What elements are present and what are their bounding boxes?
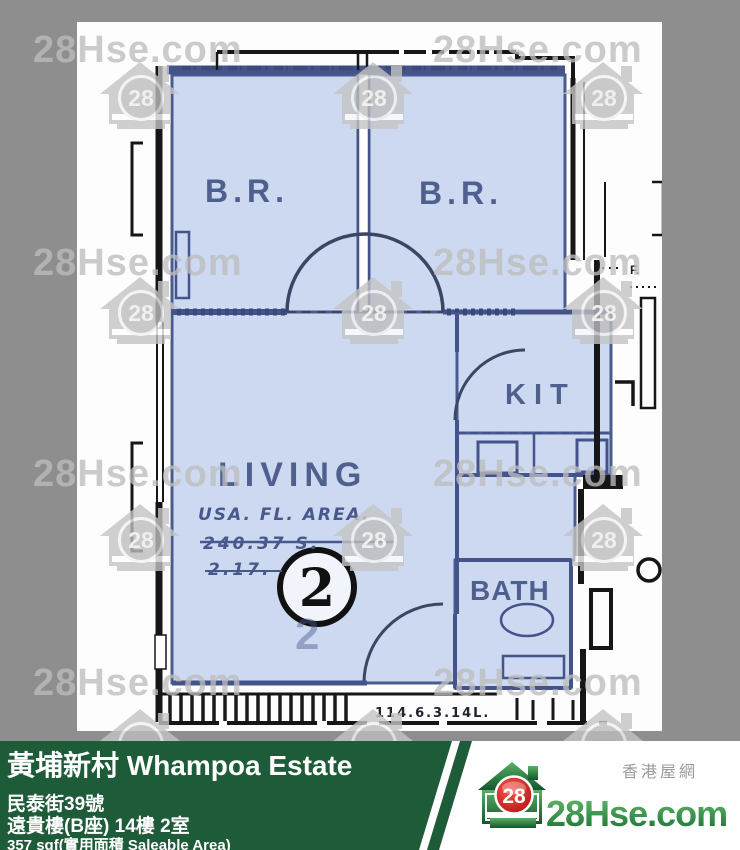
room-label-living: LIVING [218,456,367,494]
corridor-area [457,475,575,560]
neighbor-fixture-circle [638,559,660,581]
bottom-dimension-scribble: 114.6.3.14L. [375,706,490,721]
left-bracket-1 [132,143,143,235]
room-label-kitchen: KIT [505,379,576,411]
wall-right-lower [581,489,583,722]
area-annotation-2: 240.37 S. [203,534,320,554]
area-annotation-1: USA. FL. AREA. [198,505,371,525]
balcony-hatch-right [517,698,573,720]
wall-block [583,475,623,489]
unit-number: 2 [299,558,335,619]
green-caption-panel: 黃埔新村 Whampoa Estate 民泰街39號 遠貴樓(B座) 14樓 2… [0,741,470,850]
wall-right-inner [584,82,605,260]
brand-28-icon: 28 [502,785,526,808]
duct-box [591,590,611,648]
kitchen-area [457,312,611,433]
brand-house-icon: 28 [478,762,546,828]
left-bracket-2 [132,443,143,551]
estate-name: 黃埔新村 Whampoa Estate [7,744,352,784]
right-bracket [652,182,662,235]
bedroom-divider [358,75,369,312]
room-label-bathroom: BATH [470,575,550,606]
caption-bar: 黃埔新村 Whampoa Estate 民泰街39號 遠貴樓(B座) 14樓 2… [0,741,740,850]
floor-plan: 2 2 B.R. B.R. LIVING KIT BATH USA. FL. A… [77,22,662,731]
brand-logo: 28 28Hse.com [470,750,740,850]
balcony-hatch [168,695,350,721]
brand-tagline: 香港屋網 [622,758,698,782]
room-label-bedroom2: B.R. [419,175,503,211]
saleable-area: 357 sqf(實用面積 Saleable Area) [7,834,231,850]
pipe-duct [641,298,655,408]
listing-image: 2 2 B.R. B.R. LIVING KIT BATH USA. FL. A… [0,0,740,850]
neighbor-mark [615,382,633,406]
brand-logo-block[interactable]: 28 28Hse.com 香港屋網 [470,750,740,850]
room-label-bedroom1: B.R. [205,173,289,209]
left-wall-notch [155,635,166,669]
flat-mark: F. [630,263,639,277]
brand-site-name: 28Hse.com [546,793,727,834]
